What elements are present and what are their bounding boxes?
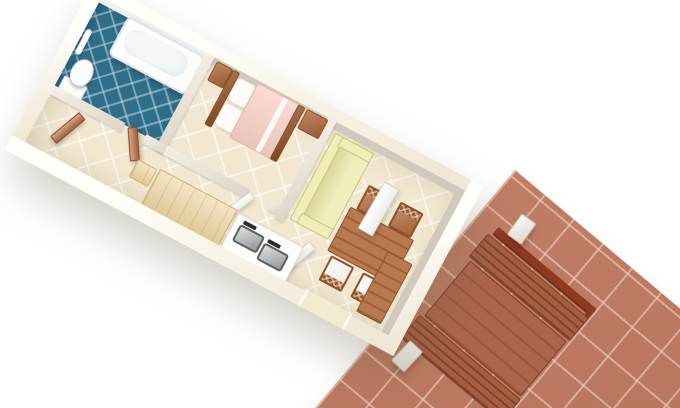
apartment-3d-floorplan [0,0,680,408]
apartment-building [5,0,484,356]
hall-door-open [50,112,86,144]
chair-back [398,204,421,221]
sink-basin-right [256,242,290,272]
chair-back [321,273,344,290]
apartment-interior [25,0,466,335]
